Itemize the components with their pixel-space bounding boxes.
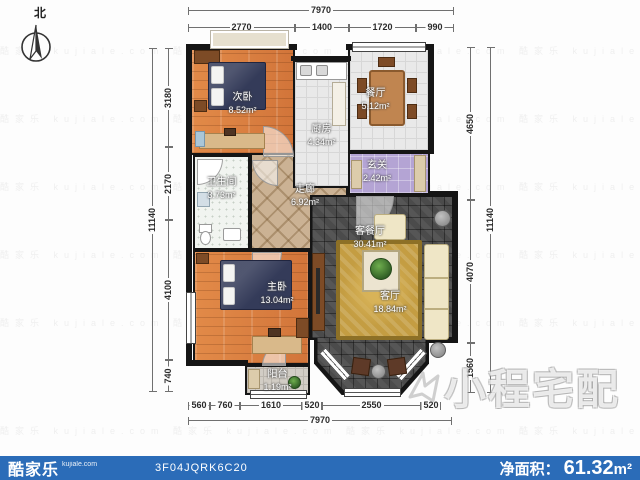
dim-top-seg: 1720 (349, 27, 416, 28)
window (352, 42, 426, 52)
room-name: 厨房 (293, 124, 350, 137)
pillow (223, 264, 235, 282)
dim-top-seg: 1400 (295, 27, 349, 28)
vendor-watermark-icon (404, 367, 444, 407)
wall (186, 360, 248, 366)
room-name: 客厅 (350, 291, 430, 304)
dim-top-total: 7970 (188, 10, 454, 11)
room-area: 1.19m² (245, 382, 310, 393)
bathroom-sink (223, 228, 241, 241)
desk-chair (224, 128, 236, 136)
dim-bottom-seg: 760 (210, 405, 240, 406)
label-dining: 餐厅 5.12m² (338, 88, 413, 112)
room-name: 阳台 (245, 369, 310, 382)
bay-window (211, 31, 288, 48)
room-area: 18.84m² (350, 304, 430, 315)
room-area: 3.73m² (193, 190, 250, 201)
label-corridor: 走廊 6.92m² (265, 184, 345, 208)
wall (291, 56, 351, 61)
room-name: 次卧 (195, 92, 290, 105)
room-area: 30.41m² (330, 239, 410, 250)
pillow (211, 66, 224, 84)
dim-left-seg: 740 (168, 360, 169, 392)
floorplan-canvas: 酷家乐 kujiale.com 酷家乐 kujiale.com 酷家乐 kuji… (0, 0, 640, 480)
label-bathroom: 卫生间 3.73m² (193, 177, 250, 201)
label-living-dining: 客餐厅 30.41m² (330, 226, 410, 250)
label-second-bedroom: 次卧 8.52m² (195, 92, 290, 116)
vendor-watermark-text: 小程宅配 (444, 356, 620, 417)
dresser (296, 318, 309, 338)
vendor-watermark: 小程宅配 (404, 356, 620, 417)
north-compass: 北 (16, 4, 68, 72)
dim-left-total: 11140 (152, 48, 153, 392)
dim-top-seg: 2770 (188, 27, 295, 28)
plant (370, 258, 392, 280)
label-balcony: 阳台 1.19m² (245, 369, 310, 393)
dim-bottom-total: 7970 (188, 420, 452, 421)
compass-icon (16, 21, 60, 67)
bay-chair (351, 357, 371, 376)
dim-left-seg: 4100 (168, 220, 169, 360)
north-label: 北 (34, 4, 68, 21)
room-area: 13.04m² (232, 295, 322, 306)
room-name: 主卧 (232, 282, 322, 295)
net-area-value: 61.32 (564, 457, 614, 480)
side-table (434, 210, 451, 227)
label-master-bedroom: 主卧 13.04m² (232, 282, 322, 306)
kujiale-logo: 酷家乐 (8, 456, 59, 480)
room-name: 客餐厅 (330, 226, 410, 239)
dim-right-total: 11140 (490, 47, 491, 393)
sink-basin (300, 65, 312, 76)
dim-right-seg: 4650 (470, 47, 471, 200)
bay-table (371, 364, 386, 379)
dim-left-seg: 2170 (168, 147, 169, 220)
entry-cabinet (414, 155, 426, 192)
toilet-bowl (200, 231, 211, 245)
wall (452, 191, 458, 343)
dim-right-seg: 4070 (470, 200, 471, 343)
wall (428, 44, 434, 154)
desk-chair (268, 328, 281, 337)
plan-id: 3F04JQRK6C20 (155, 462, 248, 474)
dim-bottom-seg: 520 (302, 405, 322, 406)
room-area: 6.92m² (265, 197, 345, 208)
desk (252, 336, 302, 354)
nightstand (196, 253, 209, 264)
dim-top-seg: 990 (416, 27, 454, 28)
kujiale-domain: kujiale.com (62, 461, 97, 468)
room-area: 2.42m² (348, 173, 406, 184)
dining-chair (378, 57, 395, 67)
sink-basin (316, 65, 328, 76)
window (344, 388, 401, 397)
tiled-watermark: 酷家乐 kujiale.com 酷家乐 kujiale.com 酷家乐 kuji… (0, 424, 640, 437)
net-area: 净面积： 61.32 m² (500, 457, 632, 480)
cabinet-small (195, 131, 205, 147)
label-living: 客厅 18.84m² (350, 291, 430, 315)
footer-bar: 酷家乐 kujiale.com 3F04JQRK6C20 净面积： 61.32 … (0, 456, 640, 480)
label-kitchen: 厨房 4.34m² (293, 124, 350, 148)
room-area: 4.34m² (293, 137, 350, 148)
net-area-label: 净面积： (500, 458, 560, 479)
label-entry: 玄关 2.42m² (348, 160, 406, 184)
dim-left-seg: 3180 (168, 48, 169, 147)
dim-bottom-seg: 560 (188, 405, 210, 406)
room-name: 餐厅 (338, 88, 413, 101)
room-area: 8.52m² (195, 105, 290, 116)
net-area-unit: m² (614, 461, 632, 478)
room-name: 走廊 (265, 184, 345, 197)
dim-bottom-seg: 1610 (240, 405, 302, 406)
window (186, 292, 196, 344)
room-name: 卫生间 (193, 177, 250, 190)
room-area: 5.12m² (338, 101, 413, 112)
room-name: 玄关 (348, 160, 406, 173)
